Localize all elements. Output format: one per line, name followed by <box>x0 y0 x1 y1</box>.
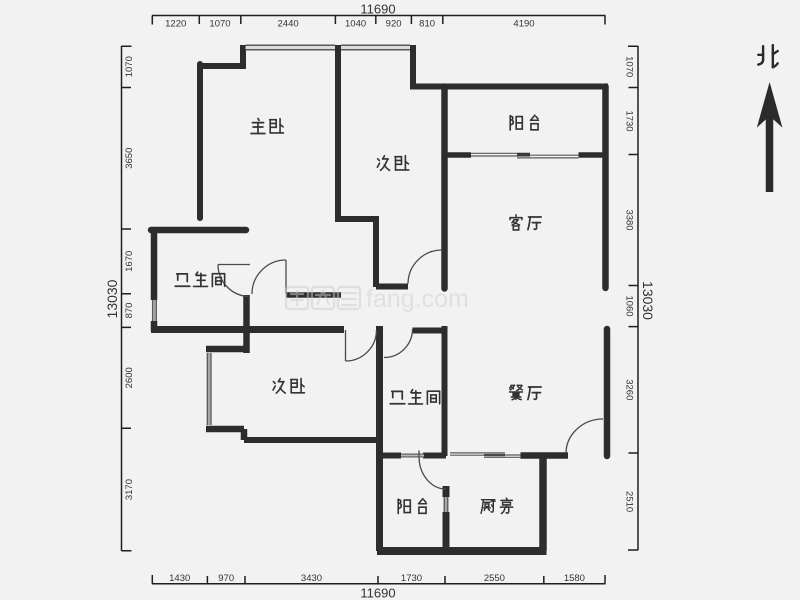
svg-text:3170: 3170 <box>124 479 135 500</box>
svg-text:1580: 1580 <box>564 573 585 584</box>
svg-text:1070: 1070 <box>124 56 135 77</box>
svg-text:11690: 11690 <box>360 2 395 17</box>
svg-text:1070: 1070 <box>209 19 230 30</box>
svg-text:1040: 1040 <box>345 19 366 30</box>
svg-text:2440: 2440 <box>278 19 299 30</box>
svg-text:1730: 1730 <box>624 110 635 131</box>
svg-text:3650: 3650 <box>124 148 135 169</box>
svg-text:2510: 2510 <box>624 491 635 512</box>
svg-text:970: 970 <box>218 573 234 584</box>
svg-text:810: 810 <box>419 19 435 30</box>
svg-text:13030: 13030 <box>104 279 120 318</box>
svg-text:3260: 3260 <box>624 379 635 400</box>
svg-text:870: 870 <box>124 303 135 319</box>
svg-text:920: 920 <box>386 19 402 30</box>
svg-text:1070: 1070 <box>624 56 635 77</box>
svg-text:2600: 2600 <box>124 367 135 388</box>
svg-text:11690: 11690 <box>360 586 395 600</box>
svg-text:3380: 3380 <box>624 209 635 230</box>
svg-text:2550: 2550 <box>484 573 505 584</box>
svg-text:1220: 1220 <box>165 19 186 30</box>
svg-text:4190: 4190 <box>513 19 534 30</box>
svg-text:1060: 1060 <box>624 295 635 316</box>
svg-text:3430: 3430 <box>301 573 322 584</box>
svg-text:13030: 13030 <box>640 281 656 320</box>
svg-text:1430: 1430 <box>169 573 190 584</box>
svg-text:fang.com: fang.com <box>366 285 469 313</box>
svg-text:1730: 1730 <box>401 573 422 584</box>
svg-text:1670: 1670 <box>124 251 135 272</box>
